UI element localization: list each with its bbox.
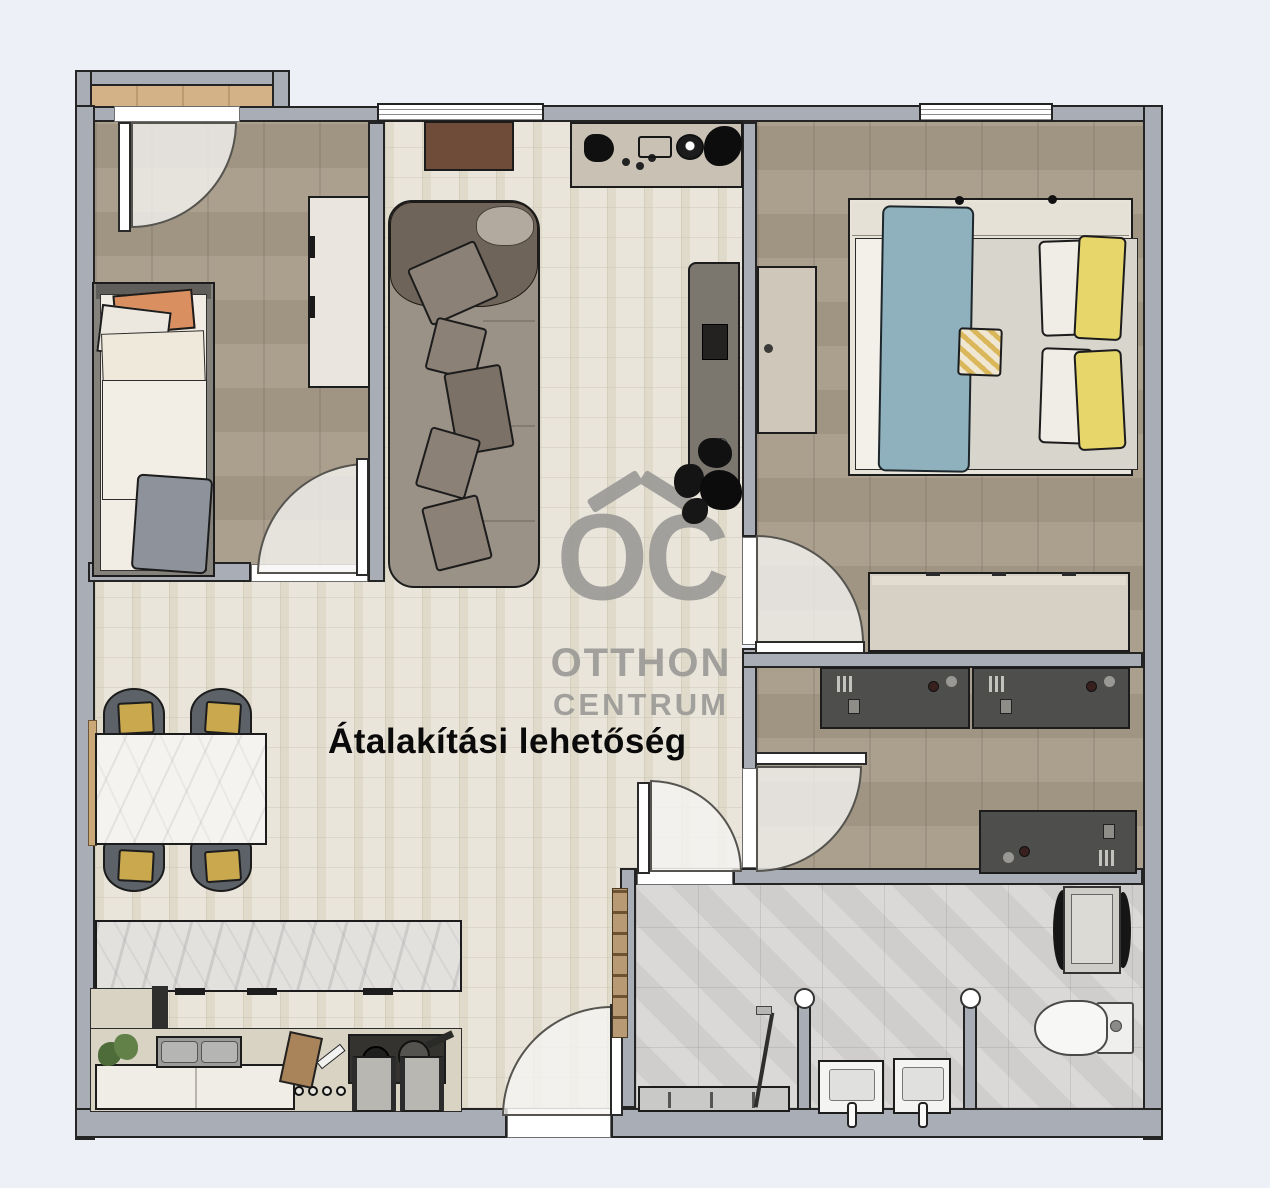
washbasin-icon	[818, 1060, 884, 1114]
bathroom-partition-2	[963, 1000, 977, 1110]
desk-icon	[972, 667, 1130, 729]
balcony-door-leaf	[118, 122, 131, 232]
dining-chair-icon	[190, 840, 252, 892]
bedroom-left-door-leaf	[356, 458, 369, 576]
bar-stool-icon	[400, 1056, 444, 1112]
double-bed-icon	[848, 198, 1133, 476]
desk-icon	[979, 810, 1137, 874]
bar-stool-icon	[352, 1056, 396, 1112]
dresser-icon	[868, 572, 1130, 652]
balcony-wall-top	[75, 70, 290, 86]
plant-icon	[668, 438, 748, 530]
kitchen-island-icon	[95, 920, 462, 992]
bedroom-study-divider-wall	[742, 652, 1143, 668]
pillow-icon	[1073, 349, 1126, 451]
balcony-door-opening	[114, 106, 240, 122]
bedroom-left-east-wall	[368, 122, 385, 582]
cushion-icon	[957, 327, 1003, 377]
pillow-icon	[1073, 235, 1126, 341]
logo-line1: OTTHON	[545, 641, 737, 686]
floorplan-canvas: OC OTTHON CENTRUM	[0, 0, 1270, 1188]
partition-1-post	[794, 988, 815, 1009]
plant-icon	[584, 134, 614, 162]
bedroom-right-window	[919, 103, 1053, 122]
washbasin-icon	[893, 1058, 951, 1114]
bathroom-door-leaf	[637, 782, 650, 874]
plant-icon	[704, 126, 742, 166]
plant-icon	[96, 1034, 140, 1074]
dining-chair-icon	[103, 840, 165, 892]
wardrobe-icon	[308, 196, 370, 388]
bathroom-partition-1	[797, 1000, 811, 1110]
shower-icon	[638, 1086, 790, 1112]
logo-line2: CENTRUM	[545, 687, 737, 723]
bottom-wall-right	[611, 1108, 1163, 1138]
single-bed-icon	[92, 282, 215, 577]
plan-annotation: Átalakítási lehetőség	[328, 722, 687, 762]
partition-2-post	[960, 988, 981, 1009]
sofa-icon	[388, 200, 540, 588]
study-door-opening	[742, 768, 757, 868]
left-wall	[75, 105, 95, 1140]
kitchen-sink-icon	[156, 1036, 242, 1068]
dining-table-icon	[95, 733, 267, 845]
study-door-leaf	[755, 752, 867, 765]
desk-icon	[820, 667, 970, 729]
spice-jars-icon	[294, 1086, 304, 1096]
shower-glass-icon	[756, 1006, 772, 1015]
bedside-console-icon	[757, 266, 817, 434]
counter-divider	[152, 986, 168, 1032]
washing-machine-icon	[1053, 886, 1133, 976]
living-window	[377, 103, 544, 122]
sideboard-icon	[570, 122, 743, 188]
top-wall-middle	[542, 105, 922, 122]
bedroom-right-door-leaf	[755, 641, 865, 654]
blanket-icon	[131, 473, 214, 574]
doormat-icon	[424, 121, 514, 171]
tall-shelf-icon	[612, 888, 628, 1038]
bottom-wall-left	[75, 1108, 507, 1138]
bedroom-right-door-opening	[742, 537, 757, 645]
toilet-icon	[1034, 1000, 1136, 1056]
right-wall	[1143, 105, 1163, 1140]
